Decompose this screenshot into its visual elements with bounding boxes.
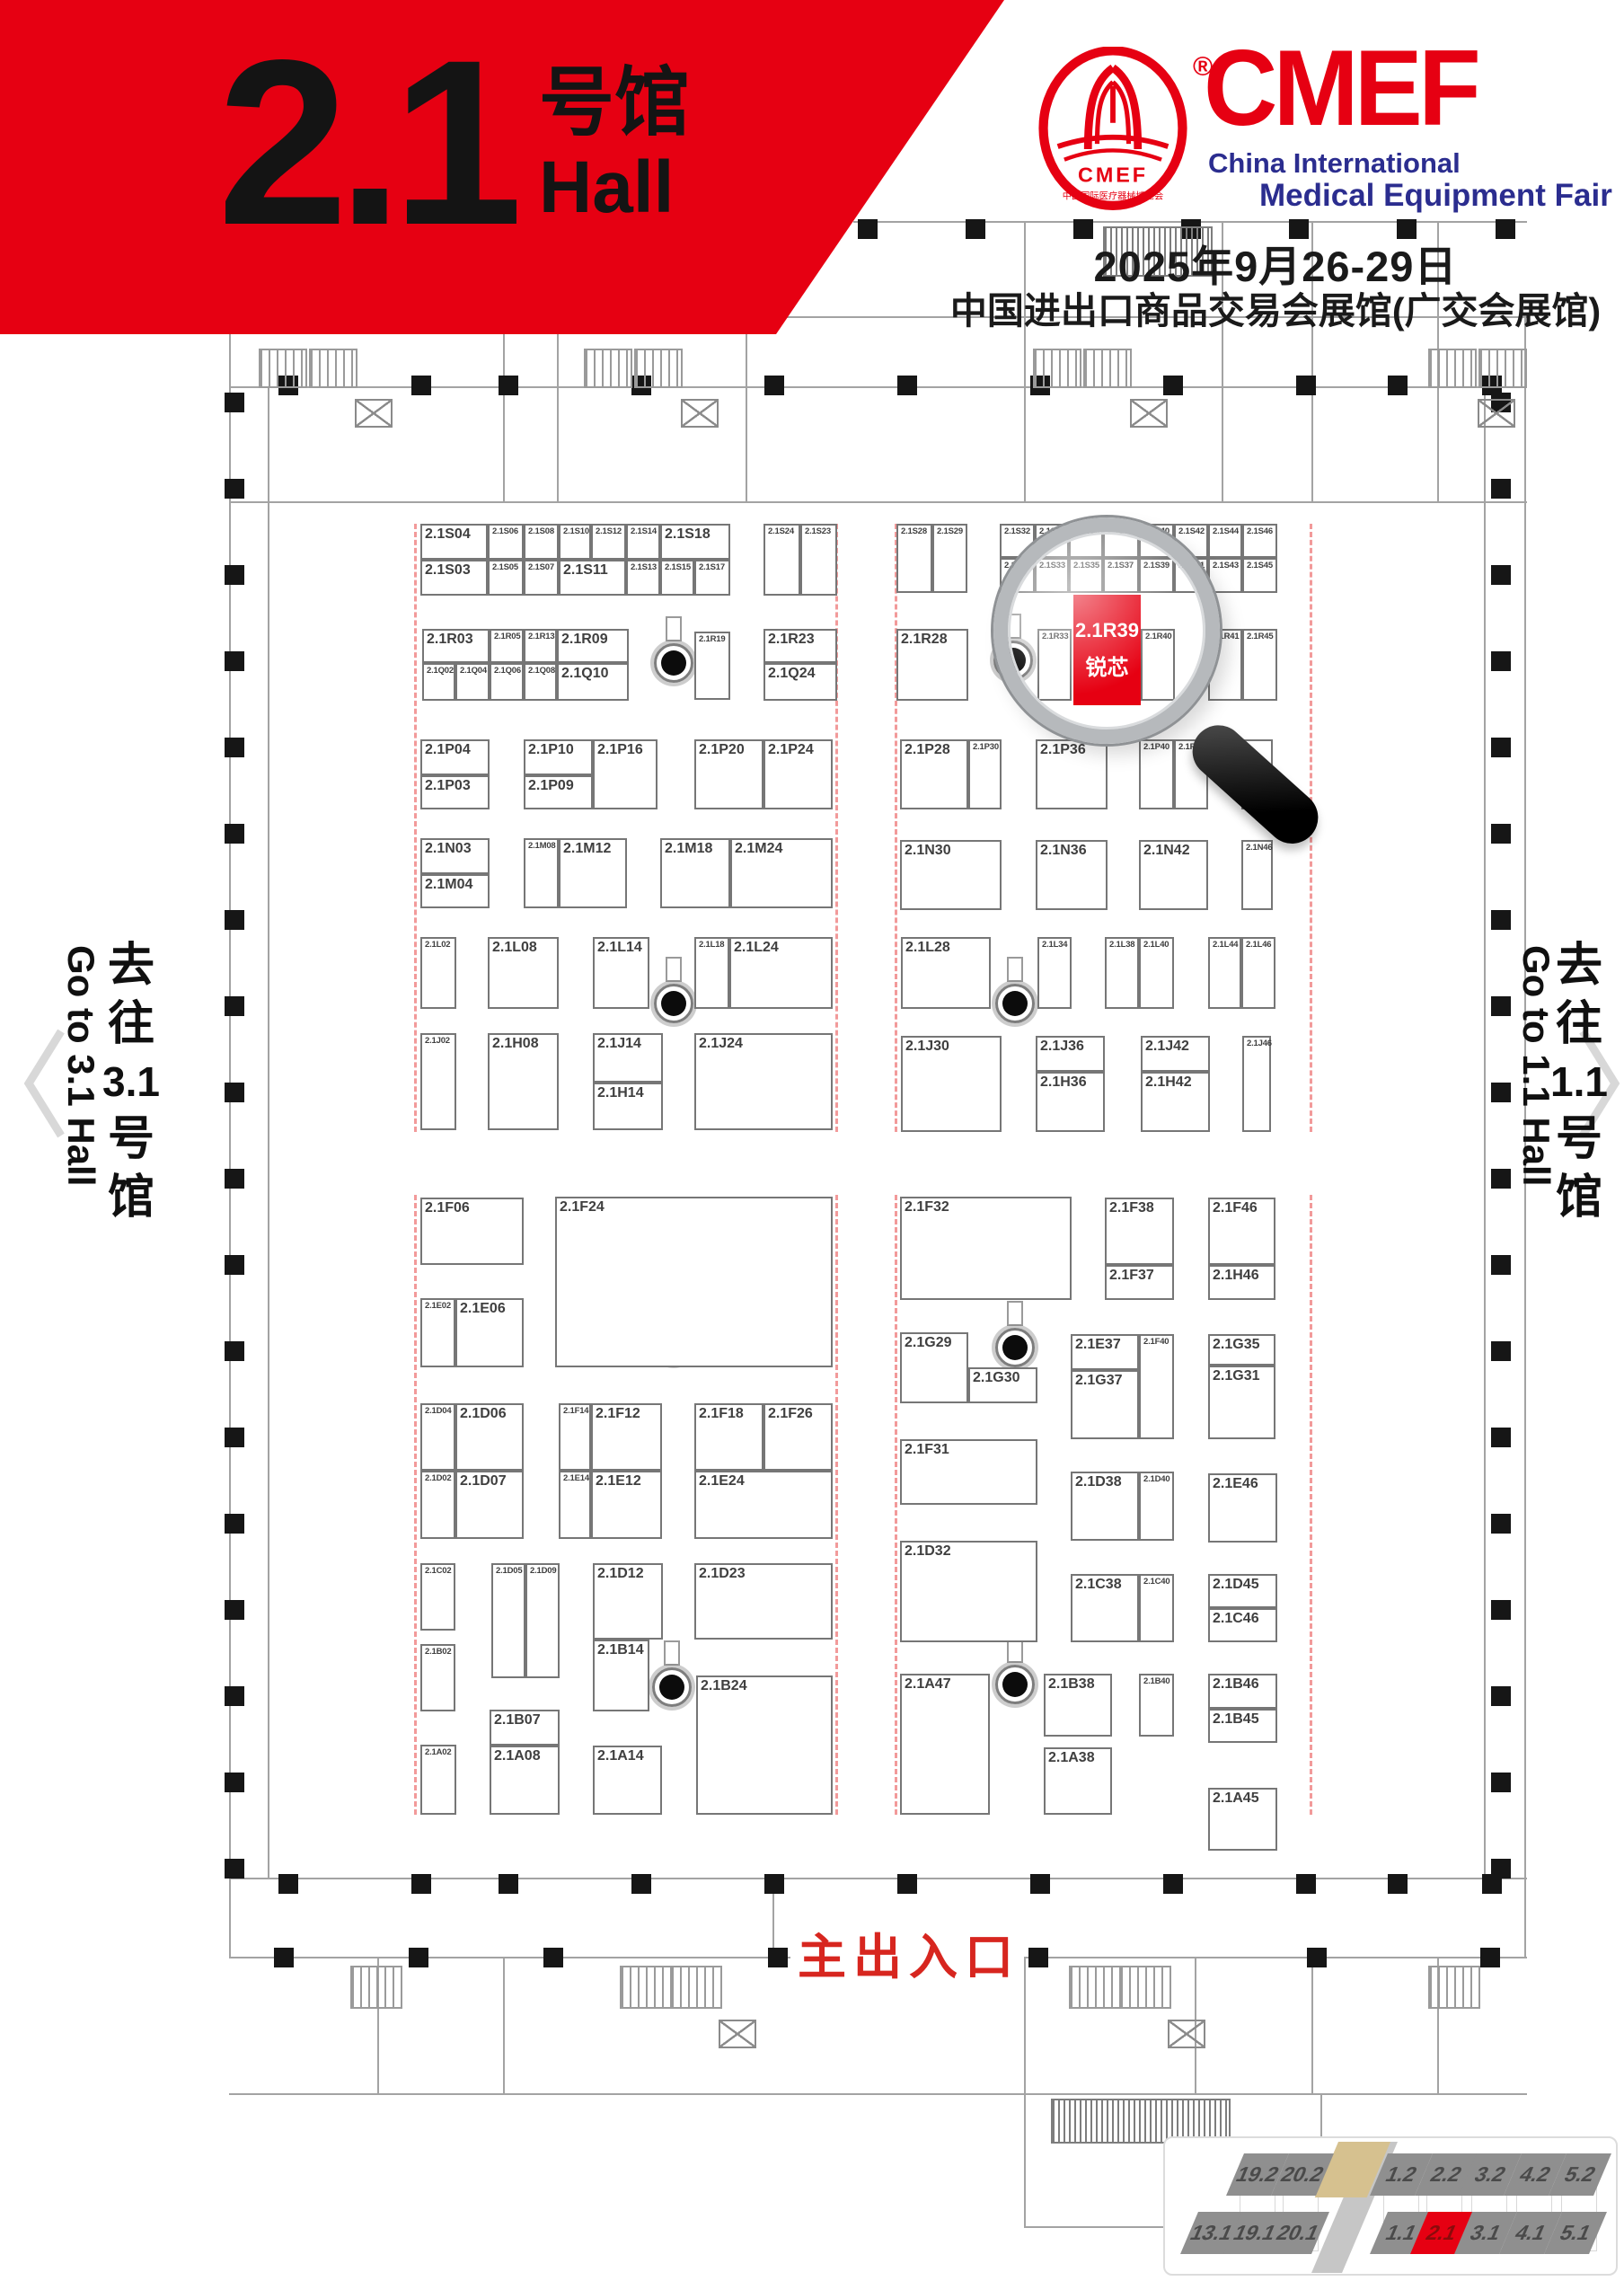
booth-2.1D05: 2.1D05 <box>491 1563 525 1678</box>
booth-2.1S40: 2.1S40 <box>1139 524 1174 558</box>
side-label-char: 去 <box>108 942 154 991</box>
booth-label: 2.1F31 <box>905 1442 949 1458</box>
booth-label: 2.1F14 <box>563 1406 588 1416</box>
booth-label: 2.1A02 <box>425 1747 451 1757</box>
booth-label: 2.1S44 <box>1213 526 1239 536</box>
pillar <box>1491 1773 1511 1792</box>
booth-label: 2.1S12 <box>596 526 622 536</box>
booth-2.1S33: 2.1S33 <box>1035 558 1069 593</box>
pillar <box>225 1255 244 1275</box>
booth-label: 2.1J46 <box>1247 1039 1272 1048</box>
wall-line <box>503 1957 505 2093</box>
elevator <box>1478 399 1515 428</box>
hall-suffix-cn: 号馆 <box>539 65 690 140</box>
booth-label: 2.1F26 <box>768 1406 813 1422</box>
booth-label: 2.1E37 <box>1075 1337 1121 1353</box>
booth-label: 2.1S11 <box>563 562 608 579</box>
booth-label: 2.1H08 <box>492 1036 539 1052</box>
side-label-char: 馆 <box>108 1173 154 1223</box>
booth-2.1R33: 2.1R33 <box>1037 629 1072 701</box>
pillar <box>225 1083 244 1102</box>
booth-2.1M24: 2.1M24 <box>730 838 833 908</box>
booth-2.1S42: 2.1S42 <box>1174 524 1208 558</box>
booth-label: 2.1J42 <box>1145 1039 1189 1055</box>
booth-label: 2.1D23 <box>699 1566 746 1582</box>
booth-label: 2.1S39 <box>1143 561 1169 570</box>
booth-2.1F06: 2.1F06 <box>420 1198 524 1265</box>
pillar <box>1491 1341 1511 1361</box>
pillar <box>274 1948 294 1967</box>
booth-2.1A38: 2.1A38 <box>1044 1747 1112 1815</box>
booth-2.1S32: 2.1S32 <box>1000 524 1035 558</box>
booth-2.1P10: 2.1P10 <box>524 739 593 775</box>
booth-label: 2.1D07 <box>460 1473 507 1490</box>
booth-2.1G35: 2.1G35 <box>1208 1334 1275 1366</box>
booth-2.1Q10: 2.1Q10 <box>557 663 629 701</box>
booth-label: 2.1F37 <box>1109 1268 1154 1284</box>
booth-2.1Q02: 2.1Q02 <box>422 663 455 701</box>
booth-label: 2.1L34 <box>1042 940 1067 950</box>
booth-label: 2.1E02 <box>425 1301 451 1311</box>
booth-label: 2.1L18 <box>699 940 724 950</box>
pillar <box>225 393 244 412</box>
booth-2.1E06: 2.1E06 <box>455 1298 524 1367</box>
pillar <box>1028 1948 1048 1967</box>
booth-2.1S14: 2.1S14 <box>626 524 660 560</box>
booth-2.1G29: 2.1G29 <box>900 1332 968 1403</box>
fire-lane-dash <box>414 1195 417 1815</box>
pillar <box>1163 1874 1183 1894</box>
hall-suffix-en: Hall <box>539 151 674 225</box>
booth-2.1S23: 2.1S23 <box>800 524 837 596</box>
column-cap <box>1007 1301 1023 1326</box>
booth-label: 2.1N30 <box>905 843 951 859</box>
booth-2.1M08: 2.1M08 <box>524 838 559 908</box>
booth-2.1S04: 2.1S04 <box>420 524 488 560</box>
side-label-char: 往 <box>1556 1000 1602 1049</box>
booth-2.1J42: 2.1J42 <box>1141 1036 1210 1072</box>
stairs <box>1069 1966 1121 2009</box>
booth-label: 2.1P30 <box>973 742 999 752</box>
minimap-hall-label: 4.2 <box>1515 2162 1554 2187</box>
booth-2.1L28: 2.1L28 <box>901 937 991 1009</box>
fire-lane-dash <box>1310 1195 1312 1815</box>
booth-2.1S17: 2.1S17 <box>694 560 730 596</box>
event-venue: 中国进出口商品交易会展馆(广交会展馆) <box>934 280 1617 334</box>
booth-label: 2.1D02 <box>425 1473 451 1483</box>
cmef-lung-logo-icon: CMEF 中国国际医疗器械博览会 <box>1031 47 1195 217</box>
booth-label: 2.1L28 <box>905 940 950 956</box>
booth-label: 2.1F24 <box>560 1199 605 1216</box>
booth-label: 2.1J14 <box>597 1036 641 1052</box>
booth-label: 2.1S03 <box>425 562 471 579</box>
booth-2.1B38: 2.1B38 <box>1044 1674 1112 1737</box>
booth-label: 2.1M18 <box>665 841 712 857</box>
booth-label: 2.1S18 <box>665 526 710 543</box>
booth-label: 2.1S15 <box>665 562 691 572</box>
booth-label: 2.1L44 <box>1213 940 1238 950</box>
booth-2.1N42: 2.1N42 <box>1139 840 1208 910</box>
pillar <box>1491 996 1511 1016</box>
booth-label: 2.1P36 <box>1040 742 1086 758</box>
pillar <box>225 1341 244 1361</box>
elevator <box>1130 399 1168 428</box>
pillar <box>1491 910 1511 930</box>
minimap-hall-label: 3.2 <box>1470 2162 1509 2187</box>
hall-number: 2.1 <box>217 25 512 261</box>
stairs <box>1119 1966 1171 2009</box>
booth-2.1S08: 2.1S08 <box>524 524 559 560</box>
pillar <box>1163 376 1183 395</box>
booth-label: 2.1A08 <box>494 1748 541 1764</box>
minimap-hall-label: 20.2 <box>1277 2162 1328 2187</box>
booth-2.1G31: 2.1G31 <box>1208 1366 1275 1439</box>
pillar <box>1480 1948 1500 1967</box>
booth-label: 2.1N46 <box>1246 843 1272 853</box>
pillar <box>1030 1874 1050 1894</box>
booth-label: 2.1A47 <box>905 1676 951 1693</box>
stairs <box>634 349 683 388</box>
round-column <box>652 1667 692 1707</box>
elevator <box>355 399 393 428</box>
booth-2.1B45: 2.1B45 <box>1208 1709 1277 1743</box>
highlight-booth-id: 2.1R39 <box>1075 619 1139 642</box>
pillar <box>225 1428 244 1447</box>
booth-2.1R19: 2.1R19 <box>694 632 730 700</box>
booth-2.1E24: 2.1E24 <box>694 1471 833 1539</box>
booth-label: 2.1Q02 <box>427 666 454 676</box>
booth-label: 2.1B14 <box>597 1642 644 1658</box>
stairs <box>1478 349 1527 388</box>
booth-label: 2.1R09 <box>561 632 608 648</box>
booth-2.1S07: 2.1S07 <box>524 560 559 596</box>
booth-2.1B14: 2.1B14 <box>593 1640 649 1711</box>
minimap-hall-label: 4.1 <box>1511 2221 1549 2245</box>
column-cap <box>664 1640 680 1666</box>
booth-label: 2.1F32 <box>905 1199 949 1216</box>
minimap-hall-label: 2.1 <box>1422 2221 1461 2245</box>
booth-label: 2.1L02 <box>425 940 450 950</box>
booth-2.1D38: 2.1D38 <box>1071 1472 1139 1541</box>
minimap-hall-label: 2.2 <box>1426 2162 1465 2187</box>
hall-map-poster: 2.1S042.1S062.1S082.1S102.1S122.1S142.1S… <box>0 0 1624 2281</box>
pillar <box>225 910 244 930</box>
booth-label: 2.1S29 <box>937 526 963 536</box>
booth-label: 2.1R45 <box>1247 632 1273 641</box>
booth-2.1S43: 2.1S43 <box>1208 558 1242 593</box>
booth-2.1S31: 2.1S31 <box>1000 558 1035 593</box>
booth-2.1L02: 2.1L02 <box>420 937 456 1009</box>
booth-2.1J46: 2.1J46 <box>1242 1036 1271 1132</box>
svg-text:CMEF: CMEF <box>1078 164 1148 187</box>
booth-label: 2.1M12 <box>563 841 611 857</box>
booth-label: 2.1P09 <box>528 778 574 794</box>
side-label-char: 号 <box>108 1115 154 1164</box>
pillar <box>1296 376 1316 395</box>
pillar <box>1491 1169 1511 1189</box>
booth-2.1N36: 2.1N36 <box>1036 840 1108 910</box>
booth-label: 2.1Q06 <box>494 666 521 676</box>
booth-2.1H08: 2.1H08 <box>488 1033 559 1130</box>
booth-2.1L40: 2.1L40 <box>1139 937 1174 1009</box>
stairs <box>1428 349 1477 388</box>
booth-label: 2.1H46 <box>1213 1268 1259 1284</box>
booth-label: 2.1M04 <box>425 877 472 893</box>
booth-2.1D12: 2.1D12 <box>593 1563 663 1640</box>
booth-2.1E14: 2.1E14 <box>559 1471 591 1539</box>
pillar <box>225 1859 244 1879</box>
booth-label: 2.1F18 <box>699 1406 744 1422</box>
booth-2.1F32: 2.1F32 <box>900 1197 1072 1300</box>
booth-2.1E46: 2.1E46 <box>1208 1473 1277 1543</box>
booth-label: 2.1N42 <box>1143 843 1190 859</box>
pillar <box>411 376 431 395</box>
column-cap <box>1007 957 1023 982</box>
booth-label: 2.1P10 <box>528 742 574 758</box>
booth-label: 2.1S45 <box>1247 561 1273 570</box>
booth-label: 2.1B02 <box>425 1647 451 1657</box>
fire-lane-dash <box>835 524 838 1132</box>
booth-2.1F12: 2.1F12 <box>591 1403 662 1471</box>
booth-label: 2.1E06 <box>460 1301 506 1317</box>
booth-2.1N46: 2.1N46 <box>1241 840 1273 910</box>
booth-2.1S45: 2.1S45 <box>1242 558 1277 593</box>
booth-label: 2.1R33 <box>1042 632 1068 641</box>
booth-label: 2.1H42 <box>1145 1074 1192 1091</box>
booth-label: 2.1Q08 <box>528 666 555 676</box>
booth-2.1J14: 2.1J14 <box>593 1033 663 1083</box>
pillar <box>897 1874 917 1894</box>
stairs <box>1083 349 1132 388</box>
booth-label: 2.1D45 <box>1213 1577 1259 1593</box>
stairs <box>584 349 632 388</box>
booth-label: 2.1S40 <box>1143 526 1169 536</box>
pillar <box>1491 824 1511 844</box>
booth-label: 2.1E12 <box>596 1473 641 1490</box>
booth-2.1A14: 2.1A14 <box>593 1746 662 1815</box>
booth-2.1S44: 2.1S44 <box>1208 524 1242 558</box>
booth-label: 2.1P28 <box>905 742 950 758</box>
booth-label: 2.1Q10 <box>561 666 608 682</box>
booth-2.1A08: 2.1A08 <box>490 1746 560 1815</box>
booth-label: 2.1E46 <box>1213 1476 1258 1492</box>
booth-2.1G37: 2.1G37 <box>1071 1370 1139 1439</box>
booth-2.1P24: 2.1P24 <box>763 739 833 809</box>
booth-2.1S38: 2.1S38 <box>1103 524 1139 558</box>
pillar <box>225 479 244 499</box>
booth-label: 2.1D40 <box>1143 1474 1169 1484</box>
side-label-char: 3.1 <box>102 1057 160 1106</box>
booth-2.1Q24: 2.1Q24 <box>763 663 837 701</box>
tagline-line1: China International <box>1208 147 1461 180</box>
booth-label: 2.1S37 <box>1108 561 1134 570</box>
booth-2.1F38: 2.1F38 <box>1105 1198 1174 1265</box>
booth-label: 2.1B24 <box>701 1678 747 1694</box>
booth-2.1D09: 2.1D09 <box>525 1563 560 1678</box>
booth-2.1B07: 2.1B07 <box>490 1710 560 1746</box>
booth-2.1S36: 2.1S36 <box>1069 524 1103 558</box>
booth-label: 2.1F38 <box>1109 1200 1154 1216</box>
booth-label: 2.1R41 <box>1213 632 1239 641</box>
booth-label: 2.1S31 <box>1004 561 1030 570</box>
booth-label: 2.1D04 <box>425 1406 451 1416</box>
booth-label: 2.1C40 <box>1143 1577 1169 1587</box>
booth-2.1S12: 2.1S12 <box>591 524 626 560</box>
main-entrance-label: 主出入口 <box>789 1917 1029 1988</box>
minimap-hall-label: 20.1 <box>1273 2221 1323 2245</box>
booth-2.1L46: 2.1L46 <box>1241 937 1275 1009</box>
booth-2.1H36: 2.1H36 <box>1036 1072 1105 1132</box>
booth-2.1N30: 2.1N30 <box>900 840 1002 910</box>
booth-2.1S29: 2.1S29 <box>932 524 967 593</box>
minimap-hall-label: 3.1 <box>1466 2221 1505 2245</box>
booth-2.1N03: 2.1N03 <box>420 838 490 874</box>
booth-label: 2.1N03 <box>425 841 472 857</box>
booth-2.1F31: 2.1F31 <box>900 1439 1037 1505</box>
wall-line <box>229 2093 1527 2095</box>
side-label-char: 馆 <box>1556 1173 1602 1223</box>
stairs <box>350 1966 402 2009</box>
booth-2.1C02: 2.1C02 <box>420 1563 455 1631</box>
booth-2.1S37: 2.1S37 <box>1103 558 1139 593</box>
booth-label: 2.1G35 <box>1213 1337 1259 1353</box>
booth-2.1F18: 2.1F18 <box>694 1403 763 1471</box>
booth-2.1S03: 2.1S03 <box>420 560 488 596</box>
booth-2.1R13: 2.1R13 <box>524 629 557 663</box>
booth-label: 2.1L38 <box>1109 940 1134 950</box>
booth-label: 2.1S42 <box>1178 526 1205 536</box>
booth-2.1B02: 2.1B02 <box>420 1644 455 1711</box>
booth-label: 2.1L46 <box>1246 940 1271 950</box>
booth-label: 2.1F12 <box>596 1406 640 1422</box>
booth-label: 2.1S36 <box>1073 526 1099 536</box>
pillar <box>278 1874 298 1894</box>
elevator <box>719 2020 756 2048</box>
pillar <box>225 1600 244 1620</box>
booth-2.1P16: 2.1P16 <box>593 739 658 809</box>
booth-label: 2.1F06 <box>425 1200 470 1216</box>
pillar <box>225 1514 244 1534</box>
booth-label: 2.1D06 <box>460 1406 507 1422</box>
booth-label: 2.1P20 <box>699 742 745 758</box>
booth-2.1P36: 2.1P36 <box>1036 739 1108 809</box>
booth-2.1P28: 2.1P28 <box>900 739 968 809</box>
booth-2.1C40: 2.1C40 <box>1139 1574 1174 1642</box>
wall-line <box>1311 1957 1313 2093</box>
booth-label: 2.1H36 <box>1040 1074 1087 1091</box>
booth-label: 2.1B38 <box>1048 1676 1095 1693</box>
booth-2.1R40: 2.1R40 <box>1141 629 1175 701</box>
booth-2.1S46: 2.1S46 <box>1242 524 1277 558</box>
booth-2.1D02: 2.1D02 <box>420 1471 455 1539</box>
booth-2.1S41: 2.1S41 <box>1174 558 1208 593</box>
booth-label: 2.1B46 <box>1213 1676 1259 1693</box>
booth-2.1S34: 2.1S34 <box>1035 524 1069 558</box>
pillar <box>1491 1600 1511 1620</box>
booth-2.1R05: 2.1R05 <box>490 629 524 663</box>
booth-label: 2.1D09 <box>530 1566 556 1576</box>
booth-2.1J30: 2.1J30 <box>901 1036 1002 1132</box>
booth-2.1R39: 2.1R39锐芯 <box>1073 595 1141 705</box>
side-label-char: 去 <box>1556 942 1602 991</box>
booth-2.1M18: 2.1M18 <box>660 838 730 908</box>
booth-label: 2.1M08 <box>528 841 556 851</box>
pillar <box>1491 651 1511 671</box>
round-column <box>993 641 1033 680</box>
booth-2.1D40: 2.1D40 <box>1139 1472 1174 1541</box>
booth-label: 2.1A45 <box>1213 1790 1259 1807</box>
pillar <box>225 738 244 757</box>
pillar <box>499 1874 518 1894</box>
wall-line <box>229 1957 790 1958</box>
booth-label: 2.1S05 <box>492 562 518 572</box>
booth-2.1B24: 2.1B24 <box>696 1675 833 1815</box>
go-to-3-1-hall-en: Go to 3.1 Hall <box>59 945 102 1186</box>
pillar <box>1491 565 1511 585</box>
pillar <box>1482 1874 1502 1894</box>
booth-2.1S10: 2.1S10 <box>559 524 591 560</box>
booth-2.1P30: 2.1P30 <box>968 739 1002 809</box>
booth-label: 2.1S38 <box>1108 526 1134 536</box>
round-column <box>654 984 693 1023</box>
booth-2.1D32: 2.1D32 <box>900 1541 1037 1642</box>
go-to-1-1-hall-cn: 去往1.1号馆 <box>1552 942 1606 1222</box>
booth-2.1E37: 2.1E37 <box>1071 1334 1139 1370</box>
pillar <box>764 376 784 395</box>
booth-label: 2.1E24 <box>699 1473 745 1490</box>
wall-line <box>503 316 505 501</box>
booth-label: 2.1A14 <box>597 1748 644 1764</box>
booth-2.1J02: 2.1J02 <box>420 1033 456 1130</box>
side-label-char: 号 <box>1556 1115 1602 1164</box>
booth-2.1M04: 2.1M04 <box>420 874 490 908</box>
booth-label: 2.1S34 <box>1039 526 1065 536</box>
booth-label: 2.1S13 <box>631 562 657 572</box>
booth-label: 2.1S41 <box>1178 561 1205 570</box>
booth-2.1F14: 2.1F14 <box>559 1403 591 1471</box>
booth-label: 2.1R23 <box>768 632 815 648</box>
pillar <box>409 1948 428 1967</box>
wall-line <box>1024 1957 1527 1958</box>
booth-label: 2.1B45 <box>1213 1711 1259 1728</box>
elevator <box>681 399 719 428</box>
booth-2.1G30: 2.1G30 <box>968 1367 1037 1403</box>
booth-label: 2.1J36 <box>1040 1039 1084 1055</box>
booth-label: 2.1P16 <box>597 742 643 758</box>
booth-2.1F26: 2.1F26 <box>763 1403 833 1471</box>
booth-2.1J36: 2.1J36 <box>1036 1036 1105 1072</box>
column-cap <box>666 616 682 641</box>
booth-2.1S28: 2.1S28 <box>896 524 932 593</box>
elevator <box>1168 2020 1205 2048</box>
wall-line <box>557 316 559 501</box>
booth-label: 2.1S46 <box>1247 526 1273 536</box>
halls-overview-minimap: 19.220.21.22.23.24.25.213.119.120.11.12.… <box>1163 2136 1618 2276</box>
stairs <box>620 1966 672 2009</box>
booth-label: 2.1P03 <box>425 778 471 794</box>
booth-label: 2.1S14 <box>631 526 657 536</box>
booth-2.1P03: 2.1P03 <box>420 775 490 809</box>
pillar <box>225 565 244 585</box>
booth-label: 2.1C02 <box>425 1566 451 1576</box>
booth-label: 2.1G37 <box>1075 1373 1122 1389</box>
stairs <box>259 349 307 388</box>
booth-label: 2.1G29 <box>905 1335 951 1351</box>
booth-2.1H46: 2.1H46 <box>1208 1265 1275 1300</box>
fire-lane-dash <box>895 1195 897 1815</box>
svg-text:中国国际医疗器械博览会: 中国国际医疗器械博览会 <box>1063 190 1163 202</box>
pillar <box>631 1874 651 1894</box>
